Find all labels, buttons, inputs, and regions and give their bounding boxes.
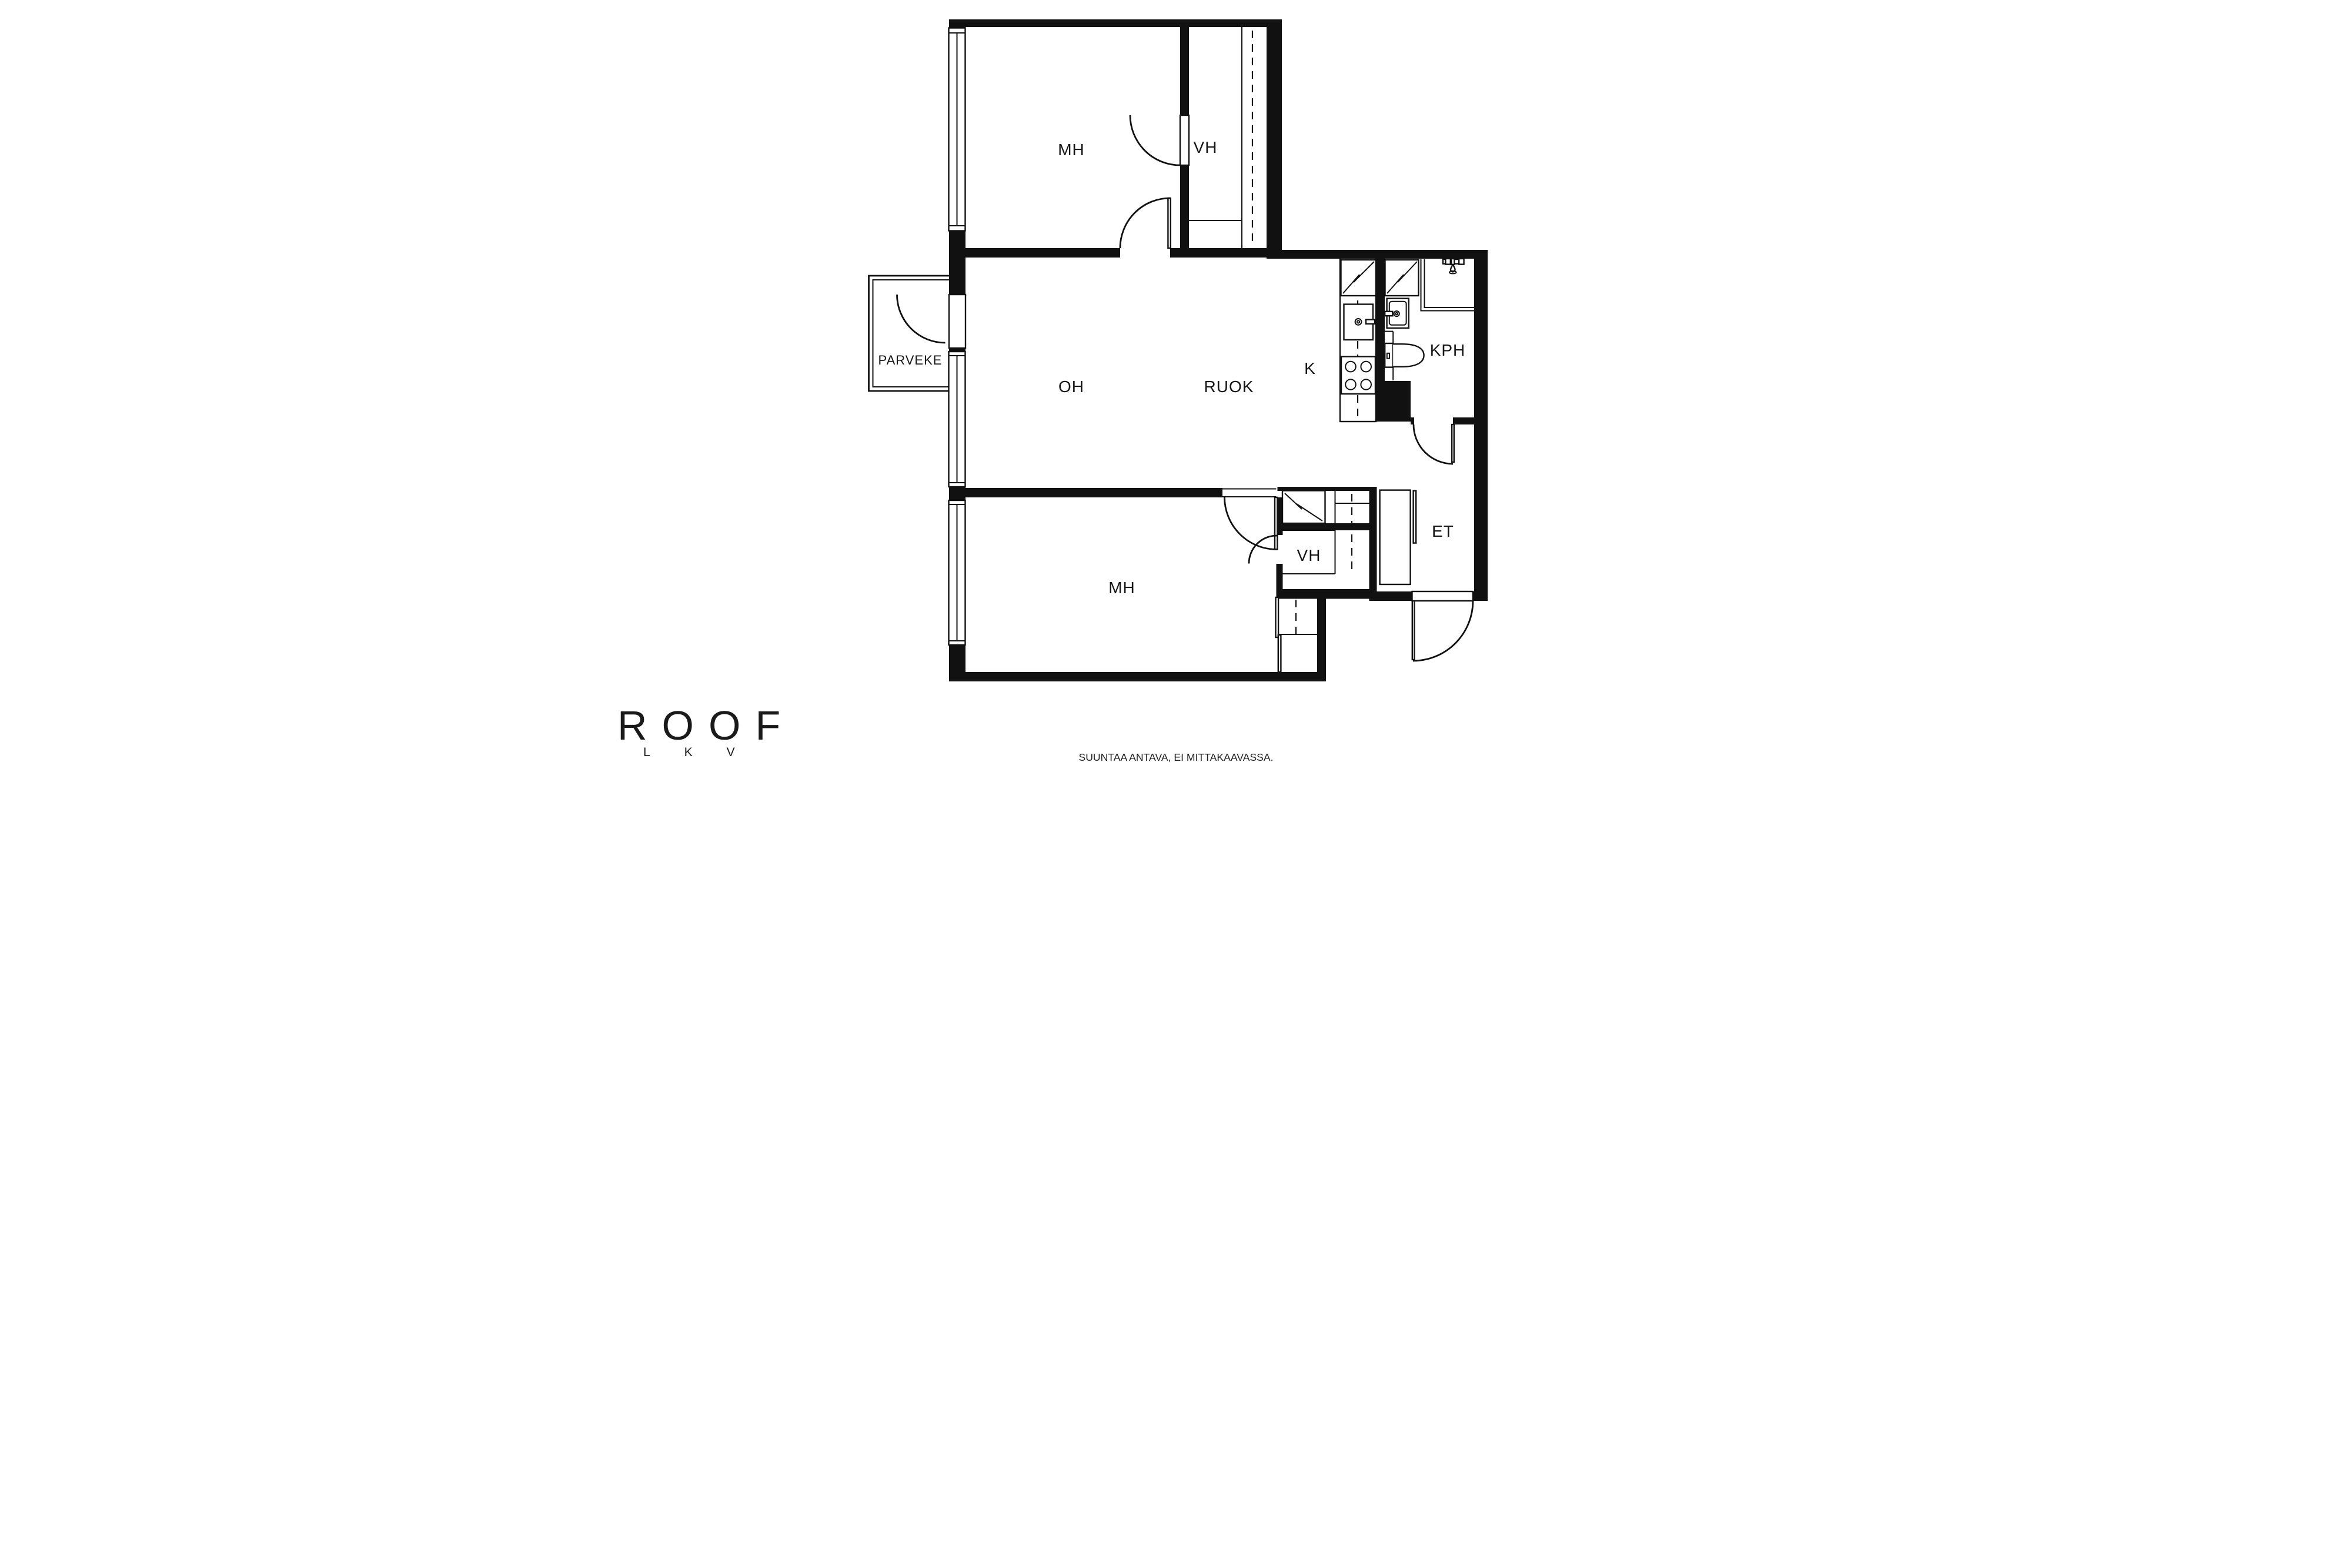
room-label-k: K	[1304, 359, 1316, 377]
wall-segment	[1277, 589, 1377, 599]
wall-segment	[1369, 487, 1377, 589]
wall-segment	[1453, 417, 1475, 424]
room-label-ruok: RUOK	[1204, 377, 1254, 396]
shower-faucet-icon	[1443, 259, 1464, 273]
wall-segment	[965, 488, 1222, 497]
door-entrance	[1412, 591, 1474, 661]
wall-segment	[949, 672, 1326, 681]
logo: ROOF LKV	[617, 703, 795, 759]
balcony-railing-outer	[869, 276, 950, 391]
wall-segment	[1180, 27, 1189, 115]
door-mh-bottom	[1222, 489, 1277, 550]
disclaimer-text: SUUNTAA ANTAVA, EI MITTAKAAVASSA.	[1078, 751, 1273, 763]
door-vh-top	[1130, 115, 1189, 165]
duct-shaft	[1376, 381, 1411, 422]
kitchen-fixtures	[1340, 258, 1376, 422]
washbasin-icon	[1385, 299, 1409, 328]
wall-segment	[949, 231, 965, 295]
balcony-railing-inner	[873, 280, 950, 387]
wall-segment	[1267, 19, 1282, 258]
room-label-mh-top: MH	[1058, 141, 1085, 159]
doors	[1120, 115, 1473, 661]
wall-segment	[1180, 165, 1189, 248]
logo-text: ROOF	[617, 703, 795, 748]
kitchen-sink-icon	[1344, 305, 1375, 340]
room-label-vh-bottom: VH	[1297, 546, 1321, 564]
wall-segment	[1473, 591, 1488, 601]
floor-plan-page: MH VH PARVEKE OH RUOK K KPH ET MH VH ROO…	[588, 0, 1764, 784]
room-label-et: ET	[1432, 522, 1454, 540]
wall-segment	[1474, 250, 1488, 601]
floor-plan-canvas: MH VH PARVEKE OH RUOK K KPH ET MH VH ROO…	[588, 0, 1764, 784]
window-mh-bottom	[949, 500, 965, 645]
balcony-door-arc	[897, 295, 946, 343]
room-label-vh-top: VH	[1194, 138, 1218, 156]
door-kph	[1414, 424, 1454, 464]
wall-segment	[1277, 564, 1283, 589]
wall-segment	[965, 248, 1120, 258]
logo-subtext: LKV	[643, 745, 769, 759]
fridge-icon	[1341, 260, 1377, 296]
wall-segment	[949, 487, 965, 500]
wall-segment	[949, 19, 1282, 27]
door-mh-top	[1120, 198, 1171, 248]
wall-segment	[1317, 599, 1326, 682]
room-label-parveke: PARVEKE	[878, 353, 943, 367]
wall-segment	[1267, 250, 1488, 259]
stove-icon	[1341, 357, 1375, 394]
room-label-kph: KPH	[1430, 341, 1466, 359]
toilet-icon	[1385, 343, 1424, 367]
wall-segment	[1369, 591, 1412, 601]
balcony-door-leaf	[949, 295, 965, 348]
room-label-mh-bottom: MH	[1108, 579, 1135, 597]
closet-et	[1380, 490, 1416, 584]
wall-segment	[1278, 523, 1369, 530]
wall-segment	[1170, 248, 1267, 258]
room-label-oh: OH	[1058, 377, 1084, 396]
wardrobe-mh-bottom	[1276, 597, 1318, 672]
wall-segment	[1411, 417, 1414, 424]
wardrobe-vh-top	[1189, 27, 1252, 248]
shower-icon	[1421, 259, 1475, 311]
wall-segment	[1376, 259, 1385, 381]
window-mh-top	[949, 28, 965, 231]
window-oh	[949, 352, 965, 487]
washer-icon	[1385, 260, 1419, 296]
appliance-fridge-icon	[1282, 491, 1325, 524]
bathroom-fixtures	[1385, 259, 1474, 380]
